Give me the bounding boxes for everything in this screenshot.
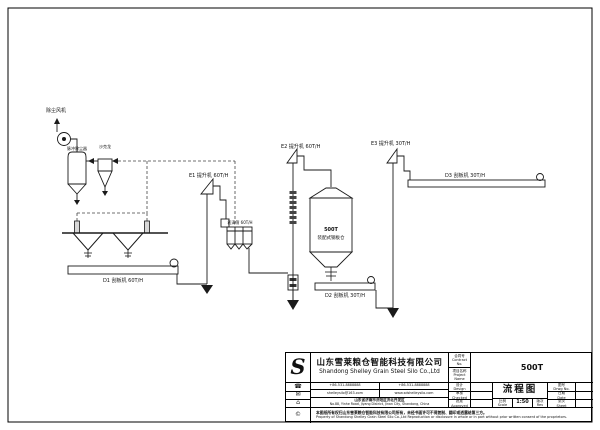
website-value: www.sdshelleysilo.com xyxy=(380,390,448,397)
address-en: No.88, Yinhe Road, Jiyang District, Jina… xyxy=(311,403,448,408)
checked-label: 审核 Checked xyxy=(449,392,471,400)
sheet-label: 张次 Sheet xyxy=(548,400,576,408)
company-name-en: Shandong Shelley Grain Steel Silo Co.,Lt… xyxy=(319,369,440,376)
drawing-title: 流程图 xyxy=(493,383,548,399)
company-name-cn: 山东雪莱粮仓智能科技有限公司 xyxy=(316,359,442,369)
email-value: shelleysilo@163.com xyxy=(311,390,380,397)
title-block: S ☎ ✉ ⌂ © 山东雪莱粮仓智能科技有限公司 Shandong Shelle… xyxy=(285,352,592,422)
elevator-e2-label: E2 提升机 60T/H xyxy=(281,143,321,150)
sieve-symbol xyxy=(227,227,288,273)
scale-value: 1:50 xyxy=(513,399,533,408)
elevator-e3-label: E3 提升机 30T/H xyxy=(371,140,411,147)
receiving-hoppers xyxy=(62,221,168,258)
conveyor-d1-symbol xyxy=(68,259,213,294)
elevator-e3-symbol xyxy=(387,149,410,308)
project-name-label: 项目名称 Project Name xyxy=(449,368,471,383)
cyclone-symbol xyxy=(86,158,118,196)
contact-block: +86-531-8888888 +86-531-8888888 shelleys… xyxy=(311,383,449,408)
conveyor-d1-label: D1 刮板机 60T/H xyxy=(103,277,143,284)
silo-capacity-label: 500T xyxy=(324,227,338,233)
project-value: 500T xyxy=(471,353,593,383)
elevator-e2-symbol xyxy=(287,149,331,300)
disclaimer-block: 本图纸所有权归山东雪莱粮仓智能科技有限公司所有，未经书面许可不得复制、翻印或透露… xyxy=(311,408,593,423)
cad-drawing-sheet: 除尘风机 脉冲除尘器 沙克龙 E1 提升机 60T/H 初清筛 60T/H D1… xyxy=(0,0,600,430)
scale-label: 比例 Scale xyxy=(493,399,513,408)
tel-value: +86-531-8888888 xyxy=(311,383,380,389)
disclaimer-en: Property of Shandong Shelley Grain Steel… xyxy=(316,416,567,420)
fax-value: +86-531-8888888 xyxy=(380,383,448,389)
checked-signature-cell xyxy=(471,392,493,400)
copyright-icon: © xyxy=(286,408,311,423)
conveyor-d2-label: D2 刮板机 30T/H xyxy=(325,292,365,299)
silo-symbol xyxy=(310,188,352,281)
phone-icon: ☎ xyxy=(286,383,311,392)
pulse-filter-label: 脉冲除尘器 xyxy=(67,145,87,151)
drawing-no-label: 图号 Drwg No. xyxy=(548,383,576,392)
pulse-filter-symbol xyxy=(68,152,86,205)
approved-signature-cell xyxy=(471,400,493,408)
date-label: 日期 Date xyxy=(548,392,576,400)
conveyor-d3-label: D3 刮板机 30T/H xyxy=(445,172,485,179)
home-icon: ⌂ xyxy=(286,400,311,408)
cyclone-label: 沙克龙 xyxy=(99,143,111,149)
drawing-no-value-cell xyxy=(576,383,593,392)
sheet-value-cell xyxy=(576,400,593,408)
elevator-e1-symbol xyxy=(201,179,229,284)
design-signature-cell xyxy=(471,383,493,392)
mail-icon: ✉ xyxy=(286,392,311,400)
approved-label: 批准 Approved xyxy=(449,400,471,408)
fan-label: 除尘风机 xyxy=(46,107,66,114)
silo-type-label: 装配式钢板仓 xyxy=(318,234,345,241)
elevator-e1-label: E1 提升机 60T/H xyxy=(189,172,229,179)
sieve-label: 初清筛 60T/H xyxy=(227,219,252,225)
company-logo: S xyxy=(286,353,311,383)
contract-no-label: 合同号 Contract No. xyxy=(449,353,471,368)
company-name-cell: 山东雪莱粮仓智能科技有限公司 Shandong Shelley Grain St… xyxy=(311,353,449,383)
rev-label: 版次 Rev xyxy=(533,399,548,408)
design-label: 设计 Design xyxy=(449,383,471,392)
date-value-cell xyxy=(576,392,593,400)
